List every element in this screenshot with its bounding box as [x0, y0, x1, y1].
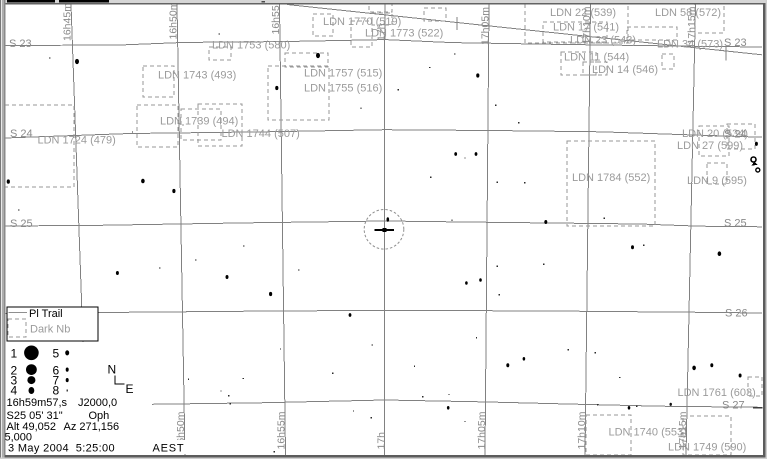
svg-text:8: 8: [53, 384, 60, 398]
svg-text:LDN 1755 (516): LDN 1755 (516): [304, 83, 382, 95]
svg-text:17h: 17h: [375, 432, 387, 450]
svg-text:S 27: S 27: [722, 400, 745, 412]
svg-text:J2000,0: J2000,0: [78, 397, 117, 409]
svg-text:Dark Nb: Dark Nb: [30, 324, 70, 336]
svg-text:LDN 23 (543): LDN 23 (543): [570, 35, 636, 47]
svg-text:LDN 14 (546): LDN 14 (546): [592, 64, 658, 76]
svg-text:S 24: S 24: [10, 128, 33, 140]
svg-text:S 26: S 26: [725, 308, 748, 320]
svg-text:LDN 9 (595): LDN 9 (595): [687, 175, 747, 187]
svg-text:1: 1: [11, 346, 18, 360]
svg-text:Pl Trail: Pl Trail: [29, 308, 63, 320]
svg-text:17h05m: 17h05m: [480, 7, 492, 45]
svg-text:S 24: S 24: [724, 129, 747, 141]
svg-text:AEST: AEST: [153, 442, 185, 454]
svg-text:17h: 17h: [375, 23, 387, 41]
svg-text:LDN 1784 (552): LDN 1784 (552): [572, 172, 650, 184]
svg-text:16h55m: 16h55m: [276, 411, 288, 449]
svg-text:LDN 1770 (519): LDN 1770 (519): [323, 16, 401, 28]
svg-text:S 23: S 23: [9, 38, 32, 50]
svg-text:4: 4: [11, 384, 18, 398]
svg-text:S 25: S 25: [724, 218, 747, 230]
svg-text:LDN 1743 (493): LDN 1743 (493): [158, 70, 236, 82]
svg-text:LDN 27 (599): LDN 27 (599): [677, 140, 743, 152]
svg-text:LDN 1724 (479): LDN 1724 (479): [38, 135, 116, 147]
svg-text:17h10m: 17h10m: [581, 6, 593, 44]
svg-text:LDN 1753 (580): LDN 1753 (580): [212, 40, 290, 52]
svg-text:16h50m: 16h50m: [168, 1, 180, 39]
svg-text:LDN 1757 (515): LDN 1757 (515): [304, 68, 382, 80]
svg-text:Az 271,156: Az 271,156: [64, 421, 120, 433]
svg-text:3 May 2004 5:25:00: 3 May 2004 5:25:00: [8, 442, 115, 454]
svg-text:LDN 1740 (553): LDN 1740 (553): [609, 427, 687, 439]
svg-text:LDN 11 (544): LDN 11 (544): [564, 52, 629, 64]
svg-text:N: N: [108, 363, 117, 377]
svg-text:16h59m57,s: 16h59m57,s: [7, 397, 68, 409]
svg-text:5: 5: [53, 346, 60, 360]
svg-text:16h45m: 16h45m: [62, 3, 74, 41]
svg-text:LDN 1744 (507): LDN 1744 (507): [222, 128, 300, 140]
svg-text:S 25: S 25: [10, 218, 33, 230]
svg-text:17h05m: 17h05m: [476, 411, 488, 449]
svg-text:E: E: [126, 382, 134, 396]
svg-text:17h15m: 17h15m: [677, 411, 689, 449]
svg-text:S 23: S 23: [724, 37, 747, 49]
svg-text:17h15m: 17h15m: [686, 6, 698, 44]
svg-text:17h10m: 17h10m: [576, 411, 588, 449]
svg-text:LDN 1761 (603): LDN 1761 (603): [678, 387, 756, 399]
svg-text:16h55m: 16h55m: [270, 0, 282, 35]
svg-text:LDN 1739 (494): LDN 1739 (494): [160, 116, 238, 128]
